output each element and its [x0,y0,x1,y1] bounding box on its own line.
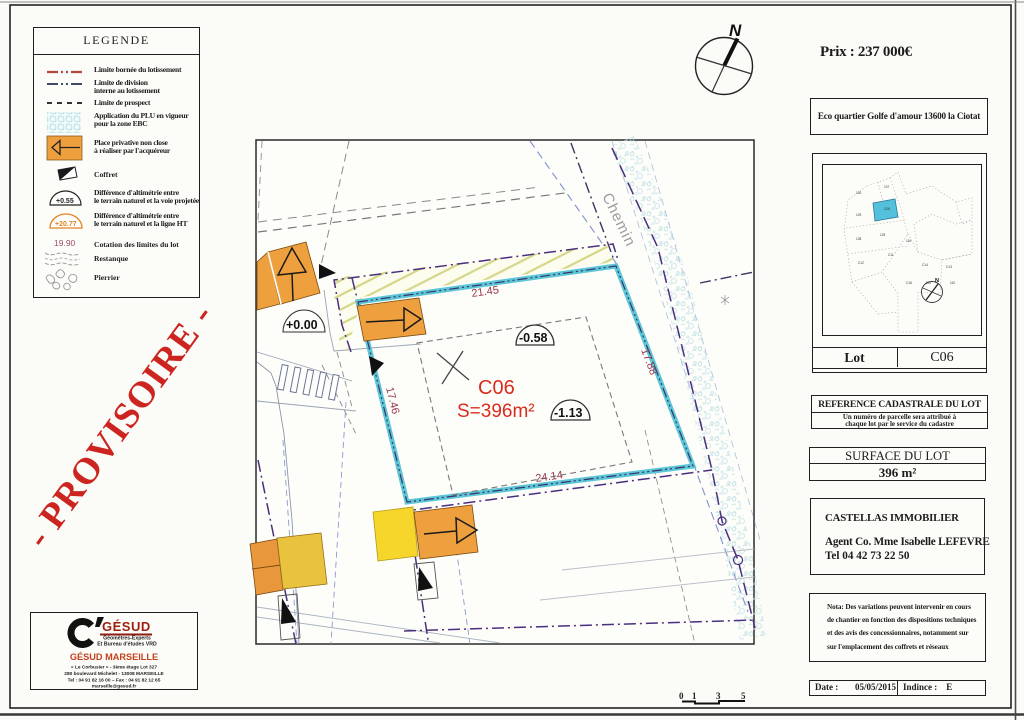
svg-text:128: 128 [856,237,862,241]
svg-text:130: 130 [856,191,862,195]
svg-text:C16: C16 [906,281,912,285]
svg-text:C13: C13 [946,265,952,269]
svg-text:« Le Corbusier » - 3ème étage: « Le Corbusier » - 3ème étage Lot 327 [71,665,157,671]
svg-text:C12: C12 [858,261,864,265]
svg-text:110: 110 [950,281,955,285]
svg-text:5: 5 [741,691,746,701]
svg-text:N: N [729,21,742,40]
svg-text:+0.00: +0.00 [286,318,318,332]
svg-text:GÉSUD: GÉSUD [102,619,151,634]
svg-text:N: N [935,278,939,284]
svg-text:125: 125 [880,233,886,237]
svg-text:+20.77: +20.77 [55,221,77,228]
svg-text:-1.13: -1.13 [554,406,583,420]
svg-text:Et Bureau d'études VRD: Et Bureau d'études VRD [97,642,157,648]
svg-text:19.90: 19.90 [54,238,76,248]
svg-text:-0.58: -0.58 [519,331,548,345]
svg-text:0: 0 [679,691,684,701]
svg-text:107: 107 [884,185,890,189]
svg-text:C06: C06 [478,377,515,399]
svg-text:C11: C11 [888,253,894,257]
svg-text:1: 1 [692,691,697,701]
svg-text:C06: C06 [884,207,890,211]
svg-text:C14: C14 [922,263,928,267]
svg-text:Tel : 04 91 82 16 00 – Fax : 0: Tel : 04 91 82 16 00 – Fax : 04 91 82 12… [68,678,161,684]
svg-text:3: 3 [716,691,721,701]
svg-text:marseille@gesud.fr: marseille@gesud.fr [92,684,137,690]
svg-text:S=396m²: S=396m² [457,401,535,422]
svg-text:280 boulevard Michelet - 13008: 280 boulevard Michelet - 13008 MARSEILLE [64,671,164,677]
svg-text:116: 116 [906,239,911,243]
svg-text:129: 129 [856,213,862,217]
svg-text:+0.55: +0.55 [56,198,74,205]
svg-text:GÉSUD MARSEILLE: GÉSUD MARSEILLE [70,651,158,662]
